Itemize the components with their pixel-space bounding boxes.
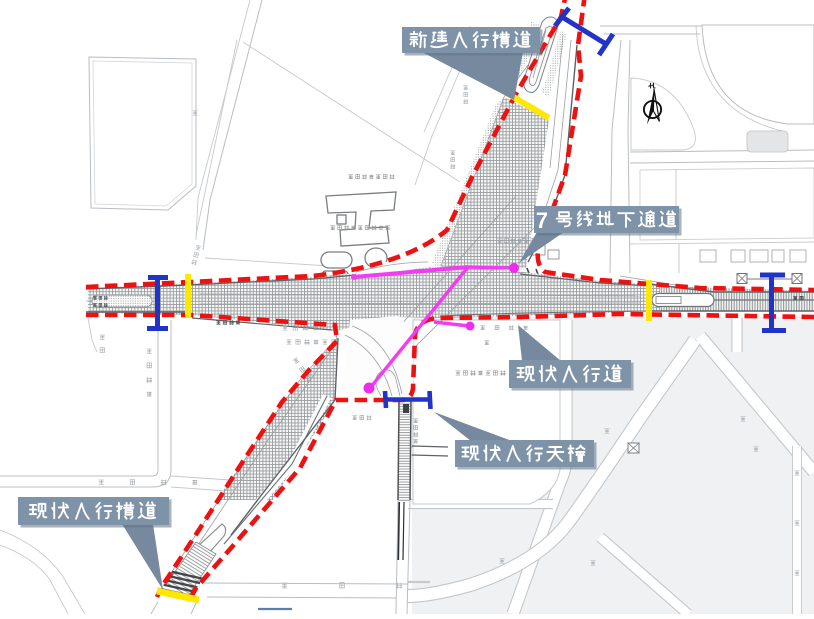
svg-text:7: 7 <box>536 208 548 233</box>
